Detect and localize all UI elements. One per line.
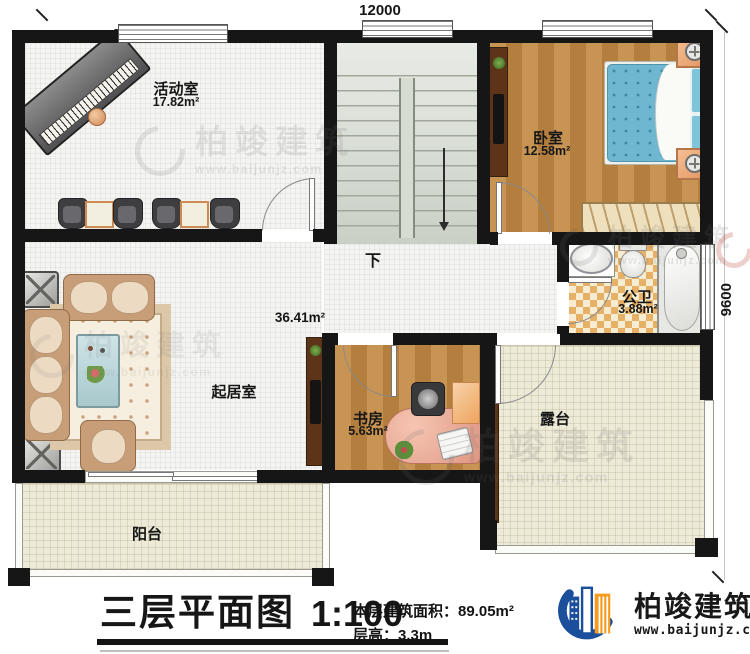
wall-left <box>12 30 25 483</box>
coffee-table <box>76 334 120 408</box>
wardrobe <box>581 202 712 236</box>
wall-right-upper <box>700 30 713 245</box>
wall-stairwell-left <box>324 30 337 244</box>
stair-center-rail <box>399 78 415 238</box>
wall-terrace-left <box>480 333 495 523</box>
dimension-tick <box>716 21 729 34</box>
room-label-living: 起居室 <box>211 381 256 402</box>
chair-cushion <box>157 206 175 223</box>
table-flowers <box>87 366 107 384</box>
sofa-cushion <box>29 396 63 434</box>
activity-chair-4 <box>210 198 240 229</box>
sofa-cushion <box>29 316 63 354</box>
wall-study-top <box>393 333 481 345</box>
corner-table-top <box>22 271 59 308</box>
table-cup <box>100 348 105 353</box>
sofa-three-seat <box>22 309 70 441</box>
balcony-floor <box>21 483 324 572</box>
wall-activity-bottom <box>12 229 262 242</box>
door-leaf-bathroom <box>568 277 612 283</box>
room-area-bedroom: 12.58m² <box>524 144 571 158</box>
tv-cabinet-bedroom <box>489 47 508 177</box>
window-bedroom <box>542 20 653 38</box>
chair-cushion <box>118 206 136 223</box>
activity-chair-1 <box>58 198 88 229</box>
corridor-floor <box>324 244 557 333</box>
chair-cushion <box>63 206 81 223</box>
sofa-cushion <box>91 429 126 464</box>
sofa-cushion <box>70 281 108 314</box>
window-stairwell <box>362 20 453 38</box>
computer-monitor <box>411 382 445 416</box>
sofa-two-seat <box>63 274 155 321</box>
brand-logo-block: 柏竣建筑 www.baijunjz.com <box>542 581 750 649</box>
room-area-living: 36.41m² <box>275 310 325 325</box>
wall-bedroom-bottom <box>552 232 712 245</box>
plant-icon <box>493 57 505 69</box>
stairs-down-label: 下 <box>365 247 381 271</box>
dimension-tick <box>705 9 718 22</box>
wall-stairwell-right <box>477 30 490 244</box>
tv-bedroom <box>493 94 504 144</box>
balcony-rail-left <box>15 483 23 573</box>
wall-bathroom-bottom <box>560 333 712 345</box>
sofa-cushion <box>29 356 63 394</box>
brand-url: www.baijunjz.com <box>634 623 750 638</box>
room-area-activity: 17.82m² <box>153 95 200 109</box>
desk-shelf <box>452 382 480 424</box>
room-area-bathroom: 3.88m² <box>618 302 658 316</box>
wall-bottom-left <box>12 470 85 483</box>
activity-side-table-1 <box>85 201 114 228</box>
sofa-cushion <box>111 281 149 314</box>
balcony-sliding-door <box>85 471 259 483</box>
floor-plan: 柏竣建筑 www.baijunjz.com 柏竣建筑 www.baijunjz.… <box>0 0 750 654</box>
window-activity <box>118 24 228 43</box>
door-leaf-study <box>391 345 397 397</box>
activity-chair-2 <box>113 198 143 229</box>
wall-bottom-right <box>257 470 480 483</box>
balcony-post-right <box>312 568 334 586</box>
drawing-title: 三层平面图 <box>100 592 295 635</box>
brand-logo-icon <box>542 581 628 649</box>
balcony-rail-bottom <box>15 569 330 577</box>
wall-terrace-left-foot <box>480 520 497 550</box>
chair-cushion <box>215 206 233 223</box>
room-area-study: 5.63m² <box>348 424 388 438</box>
balcony-rail-right <box>322 483 330 573</box>
tv-living <box>310 380 321 424</box>
title-underline-thin <box>100 650 449 652</box>
armchair <box>80 420 136 472</box>
bed-blanket <box>655 64 692 160</box>
plant-icon <box>310 345 321 356</box>
dimension-height: 9600 <box>718 283 735 316</box>
faucet-icon <box>676 248 687 259</box>
door-leaf-bedroom <box>496 182 502 234</box>
sliding-panel-1 <box>88 472 174 477</box>
activity-chair-3 <box>152 198 182 229</box>
dimension-width: 12000 <box>359 2 401 19</box>
floor-height-text: 层高：3.3m <box>353 624 432 645</box>
table-cup <box>88 346 93 351</box>
terrace-post-right <box>695 538 718 557</box>
room-label-balcony: 阳台 <box>132 523 162 544</box>
stair-direction-line <box>443 148 445 224</box>
desk-flower <box>395 441 415 459</box>
monitor-screen <box>418 389 438 409</box>
sink <box>570 243 613 274</box>
wall-study-left <box>322 333 335 483</box>
wall-bedroom-bottom-stub <box>490 232 498 245</box>
activity-side-table-2 <box>180 201 209 228</box>
piano-stool <box>88 108 106 126</box>
wall-bathroom-left-upper <box>557 244 569 282</box>
terrace-rail-bottom <box>495 545 702 554</box>
floor-area-text: 本层建筑面积：89.05m² <box>353 600 514 621</box>
brand-name: 柏竣建筑 <box>634 592 750 623</box>
dimension-tick <box>36 9 49 22</box>
window-bathroom <box>700 244 715 330</box>
balcony-post-left <box>8 568 30 586</box>
stair-down-arrow-icon <box>439 222 449 231</box>
door-leaf-activity <box>309 178 315 231</box>
terrace-rail-right <box>704 400 714 542</box>
room-label-terrace: 露台 <box>540 408 570 429</box>
door-leaf-terrace <box>495 345 501 404</box>
corner-table-pattern <box>26 275 55 304</box>
toilet <box>620 250 646 278</box>
sliding-panel-2 <box>172 476 258 481</box>
